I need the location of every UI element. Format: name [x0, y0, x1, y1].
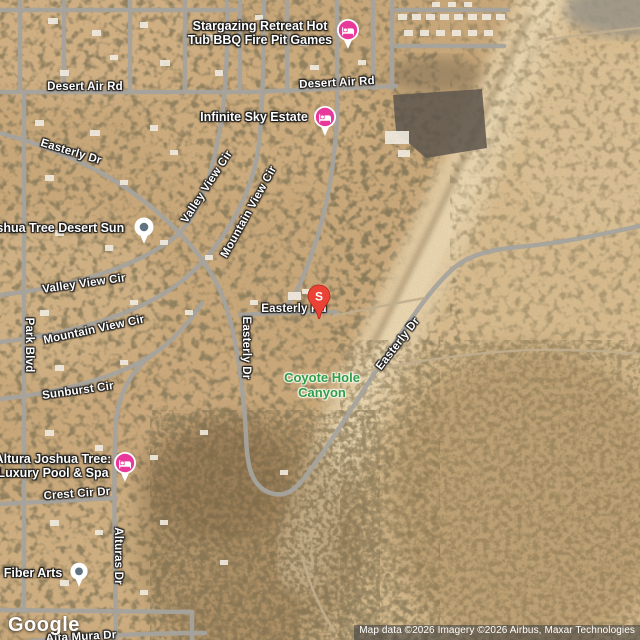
area-label-line1: Coyote Hole — [284, 370, 360, 385]
lodging-icon[interactable] — [312, 105, 338, 142]
poi-label-fiber-arts[interactable]: Fiber Arts — [4, 566, 63, 580]
road-label-park-blvd: Park Blvd — [23, 318, 35, 373]
road-label-easterly-dr-vertical: Easterly Dr — [240, 317, 252, 380]
poi-label-line1: Altura Joshua Tree: — [0, 452, 111, 466]
area-label-coyote-hole-canyon: Coyote Hole Canyon — [284, 370, 360, 400]
poi-label-line2: Tub BBQ Fire Pit Games — [188, 33, 332, 47]
road-label-alturas-dr: Alturas Dr — [112, 527, 124, 585]
generic-poi-icon[interactable] — [133, 217, 155, 250]
area-label-line2: Canyon — [284, 385, 360, 400]
poi-label-line1: Stargazing Retreat Hot — [188, 19, 332, 33]
poi-label-joshua-tree-desert-sun[interactable]: Joshua Tree Desert Sun — [0, 221, 124, 235]
poi-label-infinite-sky-estate[interactable]: Infinite Sky Estate — [200, 110, 308, 124]
road-label-desert-air-rd-left: Desert Air Rd — [47, 81, 123, 93]
lodging-icon[interactable] — [112, 451, 138, 488]
map-attribution: Map data ©2026 Imagery ©2026 Airbus, Max… — [354, 625, 640, 640]
poi-label-stargazing-retreat[interactable]: Stargazing Retreat Hot Tub BBQ Fire Pit … — [188, 19, 332, 47]
generic-poi-icon[interactable] — [69, 562, 89, 593]
poi-label-line2: Luxury Pool & Spa — [0, 466, 111, 480]
map-marker-s[interactable]: S — [305, 284, 333, 325]
marker-letter: S — [315, 290, 323, 304]
satellite-map[interactable]: Desert Air Rd Desert Air Rd Easterly Dr … — [0, 0, 640, 640]
poi-label-altura-joshua-tree[interactable]: Altura Joshua Tree: Luxury Pool & Spa — [0, 452, 111, 480]
lodging-icon[interactable] — [335, 18, 361, 55]
google-logo[interactable]: Google — [8, 614, 80, 637]
